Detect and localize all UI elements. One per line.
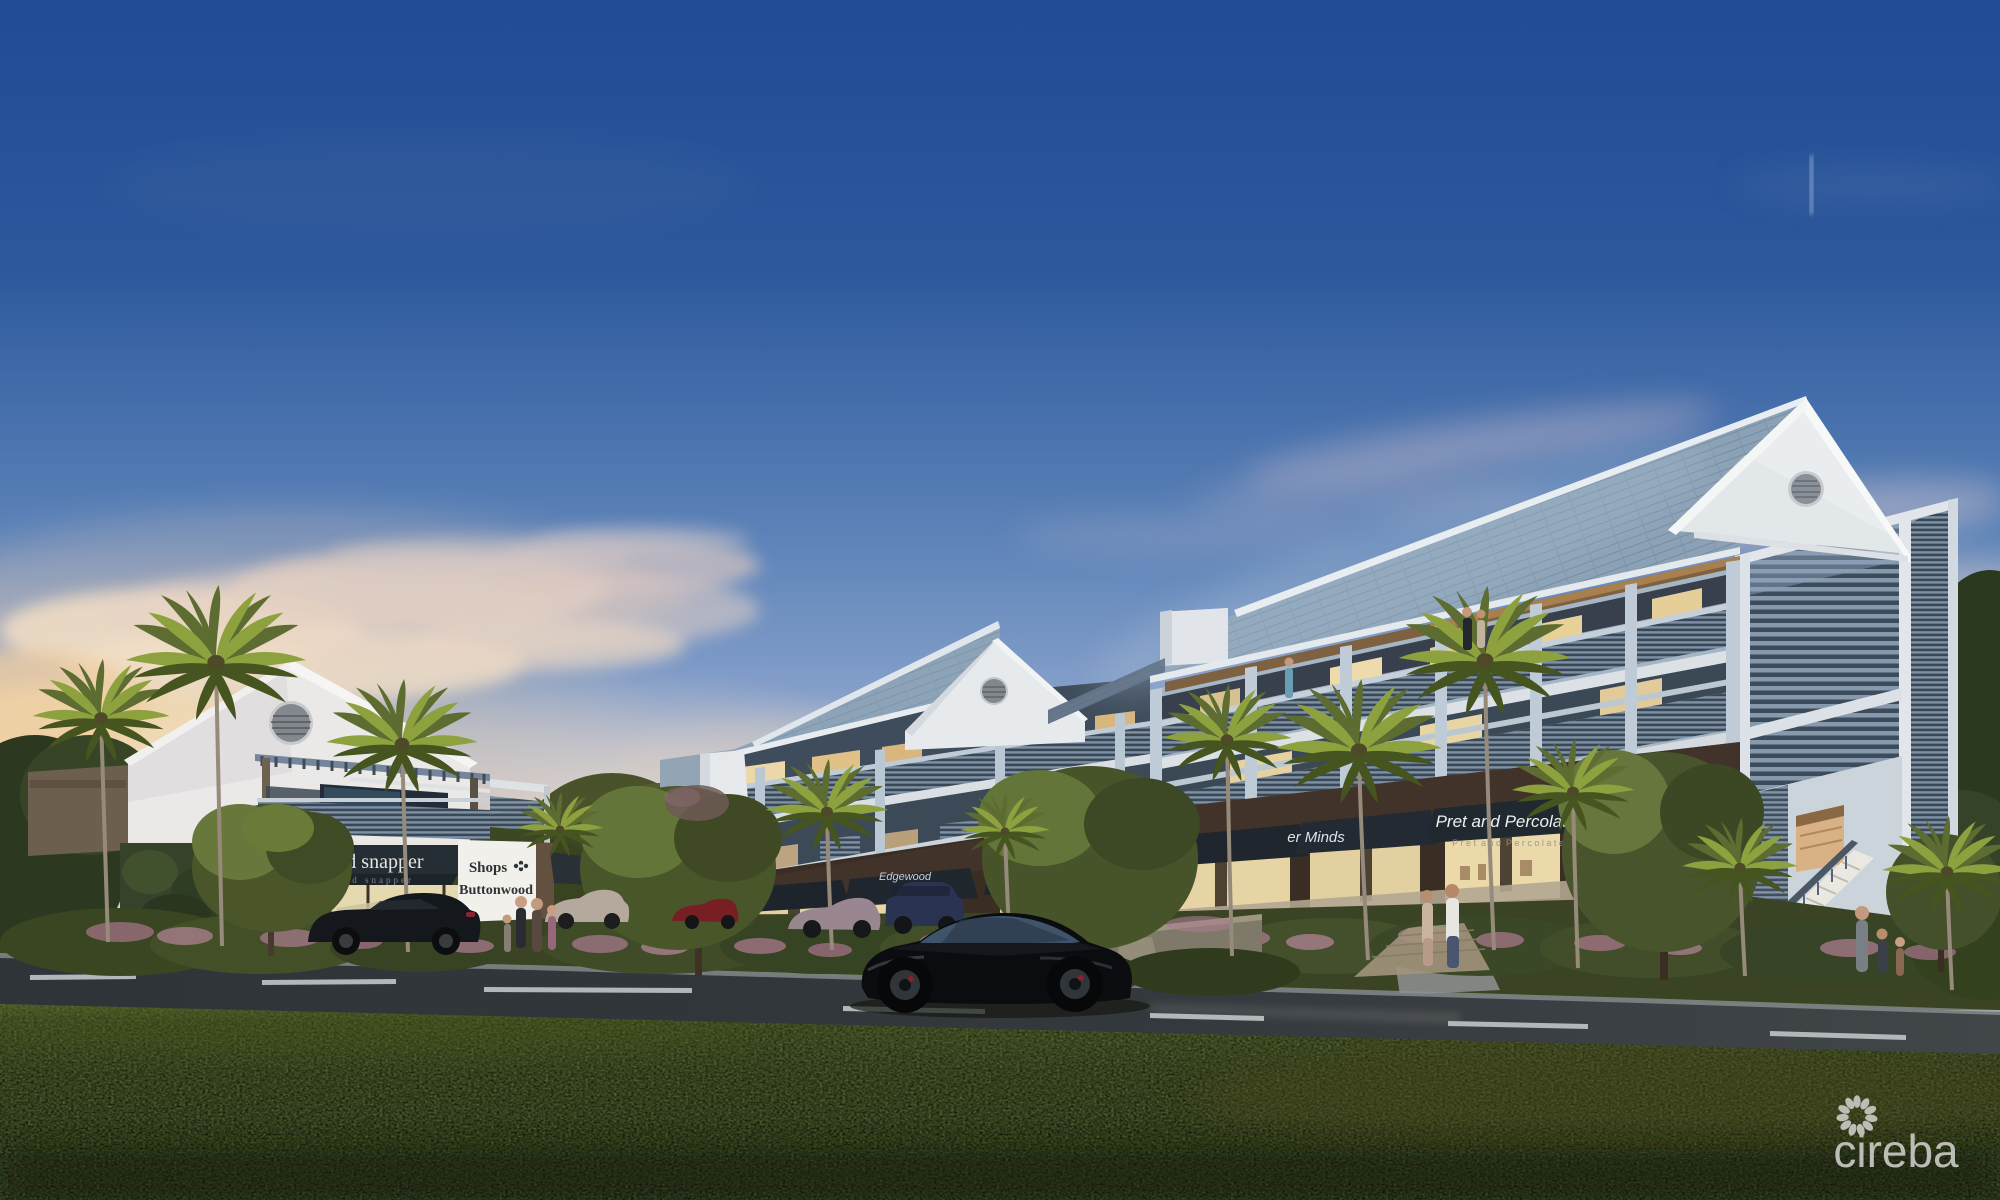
svg-text:er Minds: er Minds	[1287, 829, 1345, 846]
svg-text:P r e t a n d P e r c o l a: P r e t a n d P e r c o l a t e	[1452, 838, 1564, 848]
svg-text:Edgewood: Edgewood	[879, 871, 932, 883]
svg-text:Shops: Shops	[469, 860, 508, 876]
svg-text:Buttonwood: Buttonwood	[459, 883, 533, 898]
svg-text:Pret and Percolate: Pret and Percolate	[1436, 812, 1577, 831]
svg-text:cireba: cireba	[1833, 1125, 1959, 1177]
